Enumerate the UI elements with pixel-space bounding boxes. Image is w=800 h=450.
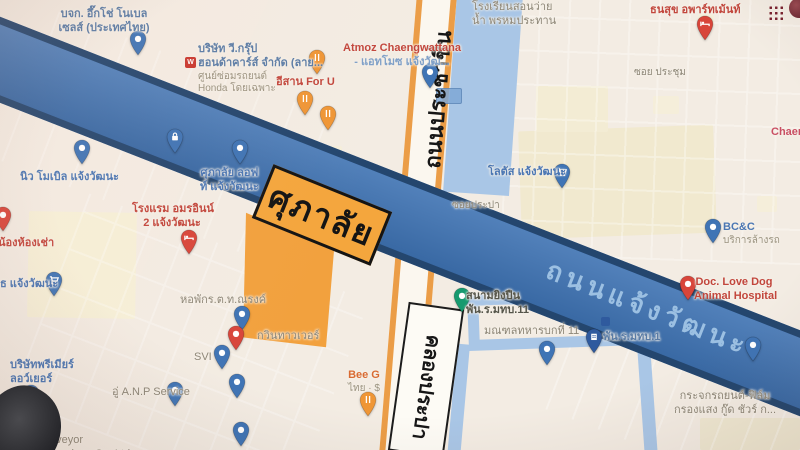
map-pin-restaurant[interactable] [319, 105, 337, 131]
map-pin[interactable] [213, 344, 231, 370]
map-pin[interactable] [232, 421, 250, 447]
poi-label-new-mobile[interactable]: นิว โมเบิล แจ้งวัฒนะ [20, 171, 119, 185]
poi-label-premier[interactable]: บริษัทพรีเมียร์ลอว์เยอร์ [10, 359, 74, 387]
area-label-monthon: มณฑลทหารบกที่ 11 [484, 325, 579, 339]
poi-label-shooting-range[interactable]: สนามยิงปืนพัน.ร.มทบ.11 [466, 290, 529, 318]
poi-label-doc-love-dog[interactable]: Doc. Love DogAnimal Hospital [694, 276, 774, 304]
poi-label-kawin[interactable]: กวินทาวเวอร์ [257, 330, 319, 344]
handwritten-canal-label: คลองประปา [401, 312, 453, 450]
map-pin[interactable] [0, 206, 12, 232]
map-pin[interactable] [231, 139, 249, 165]
poi-label-supalai-loft[interactable]: ศุภาลัย ลอฟท์ แจ้งวัฒนะ [200, 167, 259, 195]
building-block [700, 418, 800, 450]
poi-label-bcc[interactable]: BC&C บริการล้างรถ [723, 221, 780, 247]
building-block [653, 96, 679, 114]
poi-label-thanasuk[interactable]: ธนสุข อพาร์ทเม้นท์ [650, 4, 741, 18]
street-label-soi-prachum: ซอย ประชุม [634, 67, 686, 80]
building-block [536, 86, 608, 132]
poi-label-glass-film[interactable]: กระจกรถยนต์-ฟิล์มกรองแสง กู๊ด ชัวร์ ก... [660, 390, 790, 418]
poi-label-bee-g[interactable]: Bee G ไทย · $ [348, 369, 380, 395]
building-block [518, 125, 717, 240]
poi-label-chaeng-partial[interactable]: Chaen... [771, 126, 800, 140]
map-pin[interactable] [704, 218, 722, 244]
map-photo: 306 ถนนประชาชื่น ถนนแจ้งวัฒนะ ศุภาลัย คล… [0, 0, 800, 450]
map-pin-private[interactable] [166, 128, 184, 154]
poi-label-atmoz[interactable]: Atmoz Chaengwattana- แอทโมซ แจ้งวัฒ... [342, 42, 462, 70]
poi-label-svi[interactable]: SVI [194, 351, 212, 365]
building-block [757, 196, 777, 212]
poi-label-military-unit[interactable]: พัน.ร.มทบ.1 [603, 331, 660, 345]
poi-label-amorn-inn[interactable]: โรงแรม อมรอินน์2 แจ้งวัฒนะ [132, 203, 212, 231]
poi-label-lotus[interactable]: โลตัส แจ้งวัฒนะ [488, 166, 566, 180]
map-pin-military[interactable] [585, 328, 603, 354]
apps-grid-icon[interactable] [767, 4, 783, 20]
street-label-soi-prapa: ซอยประปา [452, 200, 500, 213]
avatar[interactable] [789, 0, 800, 18]
poi-label-rooms[interactable]: น้องห้องเช่า [0, 237, 54, 251]
map-pin[interactable] [744, 336, 762, 362]
map-pin[interactable] [73, 139, 91, 165]
poi-label-anp[interactable]: อู่ A.N.P Service [112, 386, 190, 400]
map-pin[interactable] [538, 340, 556, 366]
poi-label-dorm[interactable]: หอพักร.ต.ท.ณรงค์ [180, 294, 266, 308]
map-pin-lodging[interactable] [696, 15, 714, 41]
poi-label-isan[interactable]: อีสาน For U [276, 76, 335, 90]
poi-label-swim-school[interactable]: โรงเรียนสอนว่ายน้ำ พรหมประทาน [472, 1, 556, 29]
map-pin[interactable] [228, 373, 246, 399]
vgroup-logo-icon: W [185, 57, 196, 68]
building-block [27, 211, 137, 319]
map-pin-hotel[interactable] [180, 229, 198, 255]
poi-label-uekcho[interactable]: บจก. อึ๊กโช่ โนเบลเซลส์ (ประเทศไทย) [44, 8, 164, 36]
poi-label-store[interactable]: ธ แจ้งวัฒนะ [0, 278, 58, 292]
military-square-icon [601, 317, 610, 326]
